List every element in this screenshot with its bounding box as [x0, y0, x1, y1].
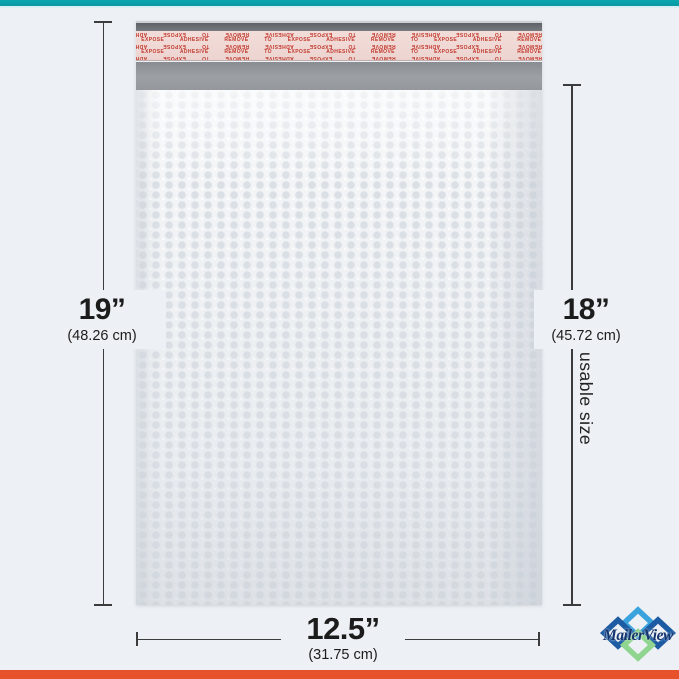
- bottom-accent-bar: [0, 670, 679, 679]
- width-value: 12.5”: [281, 613, 405, 645]
- width-metric: (31.75 cm): [281, 646, 405, 664]
- usable-dimension-tick-top: [563, 84, 581, 86]
- envelope-flap: [136, 62, 542, 90]
- brand-logo: MailerView: [596, 606, 679, 666]
- usable-metric: (45.72 cm): [534, 327, 638, 345]
- usable-dimension-tick-bottom: [563, 604, 581, 606]
- width-dimension-label: 12.5” (31.75 cm): [281, 608, 405, 668]
- height-value: 19”: [38, 295, 166, 326]
- top-accent-bar-highlight: [0, 6, 679, 8]
- envelope-bubble-body: [136, 90, 542, 605]
- usable-dimension-label: 18” (45.72 cm): [534, 290, 638, 349]
- usable-size-caption: usable size: [575, 352, 596, 462]
- height-metric: (48.26 cm): [38, 327, 166, 345]
- height-dimension-tick-bottom: [94, 604, 112, 606]
- width-dimension-tick-right: [538, 632, 540, 646]
- height-dimension-label: 19” (48.26 cm): [38, 290, 166, 349]
- adhesive-warning-text: REMOVE TO EXPOSE ADHESIVE REMOVE TO EXPO…: [136, 55, 542, 61]
- adhesive-warning-text: REMOVE TO EXPOSE ADHESIVE REMOVE TO EXPO…: [136, 31, 542, 37]
- height-dimension-tick-top: [94, 21, 112, 23]
- adhesive-warning-text: REMOVE TO EXPOSE ADHESIVE REMOVE TO EXPO…: [136, 43, 542, 49]
- width-dimension-tick-left: [136, 632, 138, 646]
- adhesive-strip-liner: REMOVE TO EXPOSE ADHESIVE REMOVE TO EXPO…: [136, 31, 542, 61]
- brand-name: MailerView: [596, 627, 679, 645]
- usable-value: 18”: [534, 295, 638, 326]
- envelope-flap-fold: [136, 23, 542, 31]
- bubble-mailer-envelope: REMOVE TO EXPOSE ADHESIVE REMOVE TO EXPO…: [136, 21, 542, 605]
